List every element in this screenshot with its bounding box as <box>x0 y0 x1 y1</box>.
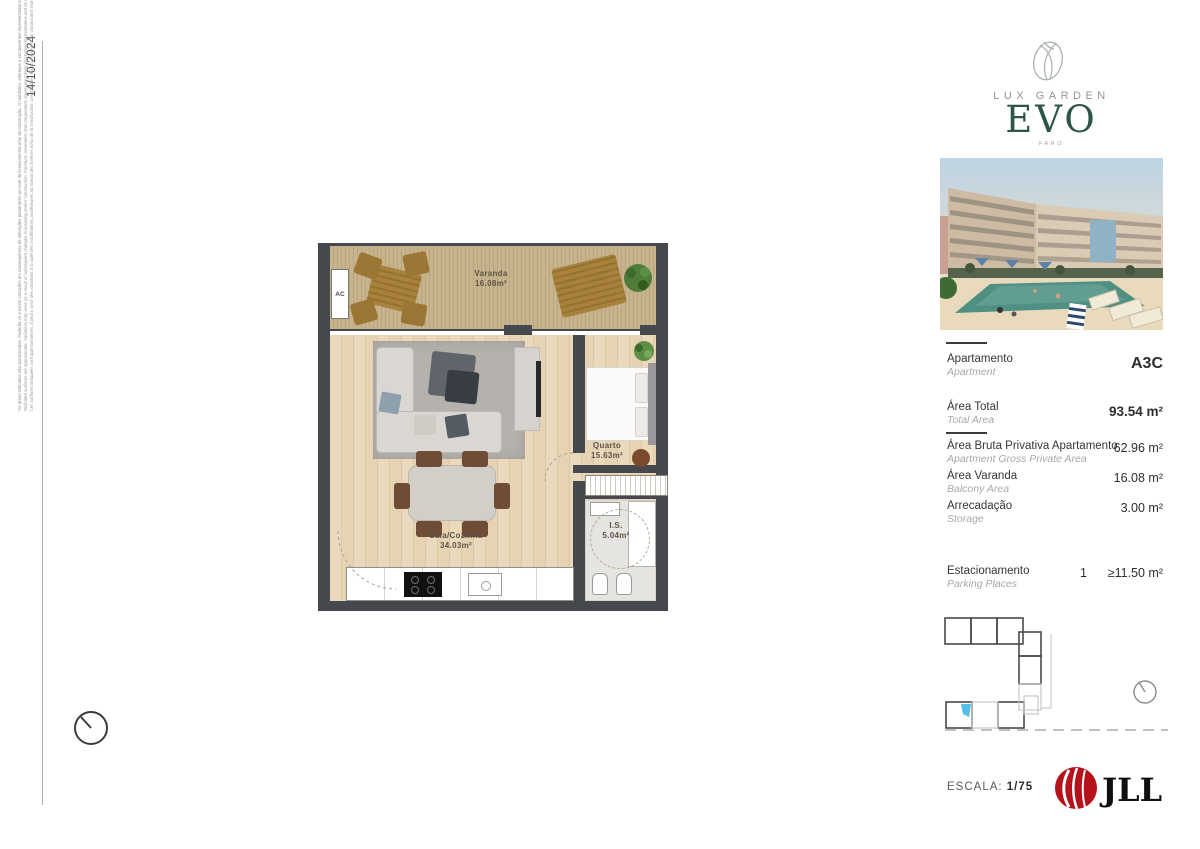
project-photo <box>940 158 1163 330</box>
disclaimer-text: "As áreas indicadas são aproximadas. Pod… <box>17 110 35 412</box>
total-area-value: 93.54 m² <box>940 404 1163 419</box>
divider <box>946 432 987 434</box>
room-area: 34.03m² <box>396 541 516 551</box>
brand-logo-text: EVO <box>940 101 1163 138</box>
scale-value: 1/75 <box>1007 781 1033 793</box>
room-area: 16.08m² <box>436 279 546 289</box>
scale-caption: ESCALA: <box>947 781 1003 793</box>
brand-leaf-icon <box>1026 36 1070 84</box>
gross-area-value: 62.96 m² <box>940 441 1163 455</box>
room-label-quarto: Quarto 15.63m² <box>566 441 648 462</box>
room-name: Quarto <box>566 441 648 451</box>
room-name: Sala/Cozinha <box>396 531 516 541</box>
divider <box>946 342 987 344</box>
room-name: I.S. <box>588 521 644 531</box>
jll-logo: JLL <box>1052 762 1164 814</box>
parking-area-value: ≥11.50 m² <box>940 566 1163 580</box>
brand-location: FARO <box>940 141 1163 147</box>
balcony-area-value: 16.08 m² <box>940 471 1163 485</box>
margin-rule <box>42 41 43 805</box>
scale-label: ESCALA: 1/75 <box>947 781 1033 793</box>
floor-plan: AC <box>318 243 668 611</box>
disclaimer-fr: "Les surfaces indiquées sont approximati… <box>29 110 35 412</box>
jll-wordmark: JLL <box>1099 771 1162 809</box>
north-compass-icon <box>72 709 110 747</box>
room-name: Varanda <box>436 269 546 279</box>
door-swing-arcs <box>318 243 668 611</box>
room-area: 5.04m² <box>588 531 644 541</box>
room-label-sala: Sala/Cozinha 34.03m² <box>396 531 516 552</box>
storage-value: 3.00 m² <box>940 501 1163 515</box>
room-area: 15.63m² <box>566 451 648 461</box>
key-plan <box>940 612 1170 757</box>
unit-highlight <box>961 704 971 717</box>
apartment-code: A3C <box>940 355 1163 373</box>
room-label-is: I.S. 5.04m² <box>588 521 644 542</box>
room-label-varanda: Varanda 16.08m² <box>436 269 546 290</box>
floorplan-sheet: 14/10/2024 "As áreas indicadas são aprox… <box>0 0 1200 849</box>
